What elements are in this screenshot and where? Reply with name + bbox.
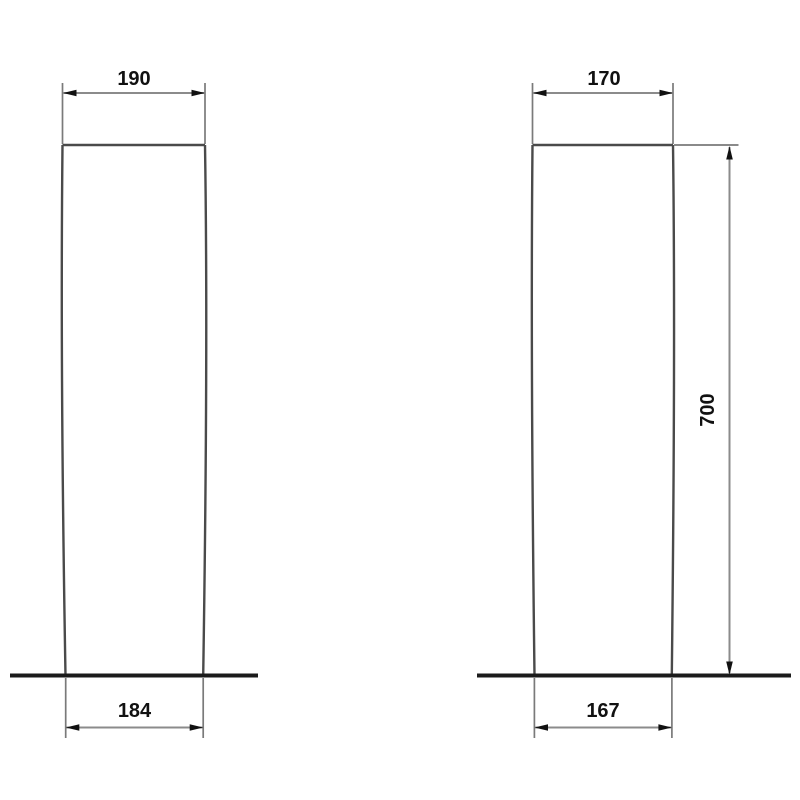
dim-bottom-width-right: 167 [534,678,672,738]
pedestal-outline-left [62,145,206,676]
pedestal-left-side [62,145,66,676]
dim-label-top-width-left: 190 [117,68,150,90]
arrowhead-left-icon [535,724,549,731]
arrowhead-left-icon [66,724,80,731]
dim-label-bottom-width-left: 184 [118,700,152,722]
arrowhead-down-icon [726,662,733,676]
pedestal-left-side [532,145,535,676]
dim-top-width-right: 170 [533,68,674,144]
arrowhead-right-icon [190,724,204,731]
arrowhead-left-icon [533,90,547,97]
arrowhead-up-icon [726,146,733,160]
dim-label-top-width-right: 170 [587,68,620,90]
dim-height-right: 700 [674,145,739,675]
arrowhead-right-icon [658,724,672,731]
technical-drawing-canvas: 190 184 [0,0,800,800]
arrowhead-left-icon [63,90,77,97]
dim-bottom-width-left: 184 [66,678,204,738]
dim-label-height-right: 700 [697,393,719,426]
pedestal-right-side [672,145,674,676]
dim-label-bottom-width-right: 167 [586,700,619,722]
arrowhead-right-icon [192,90,206,97]
right-view: 170 167 [477,68,791,738]
dim-top-width-left: 190 [63,68,206,144]
pedestal-outline-right [532,145,674,676]
pedestal-right-side [203,145,206,676]
arrowhead-right-icon [660,90,674,97]
pedestal-technical-drawing: 190 184 [0,0,800,800]
left-view: 190 184 [10,68,258,738]
